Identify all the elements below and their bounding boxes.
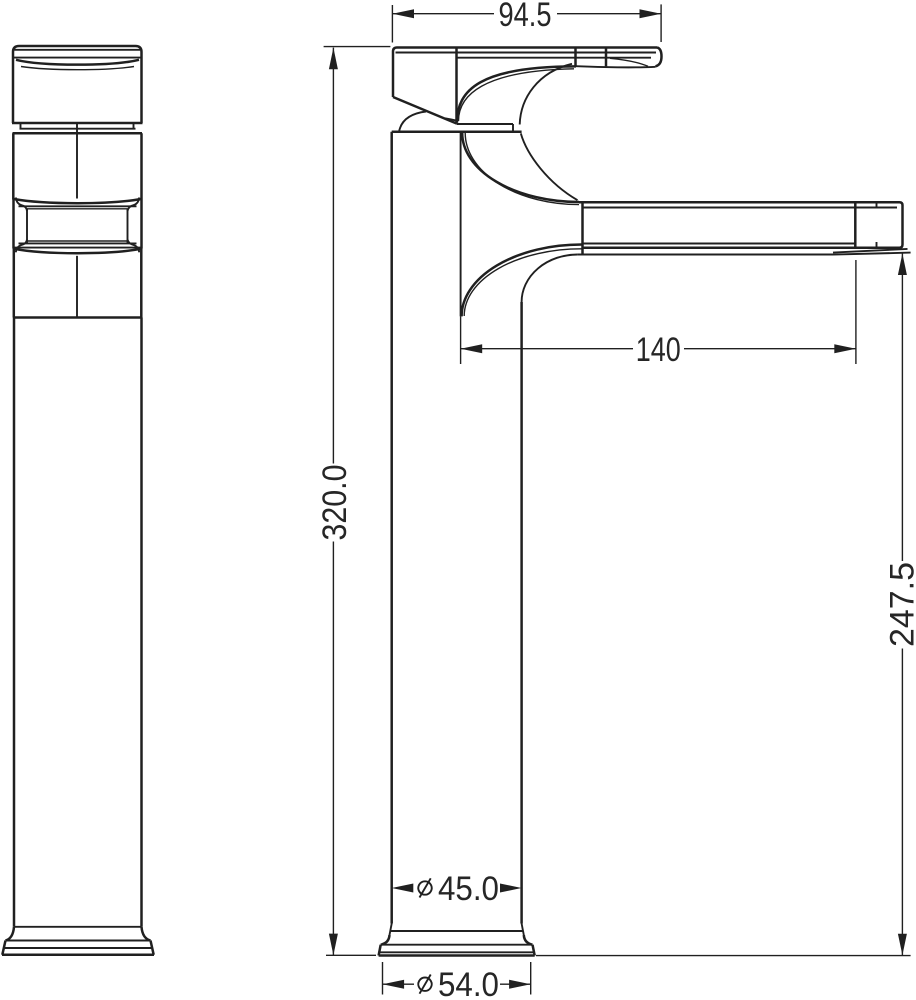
svg-text:54.0: 54.0 (438, 966, 499, 1000)
svg-text:140: 140 (636, 331, 681, 369)
svg-text:45.0: 45.0 (438, 870, 499, 908)
svg-text:247.5: 247.5 (884, 562, 916, 647)
svg-text:320.0: 320.0 (316, 465, 354, 541)
svg-text:94.5: 94.5 (499, 0, 552, 34)
